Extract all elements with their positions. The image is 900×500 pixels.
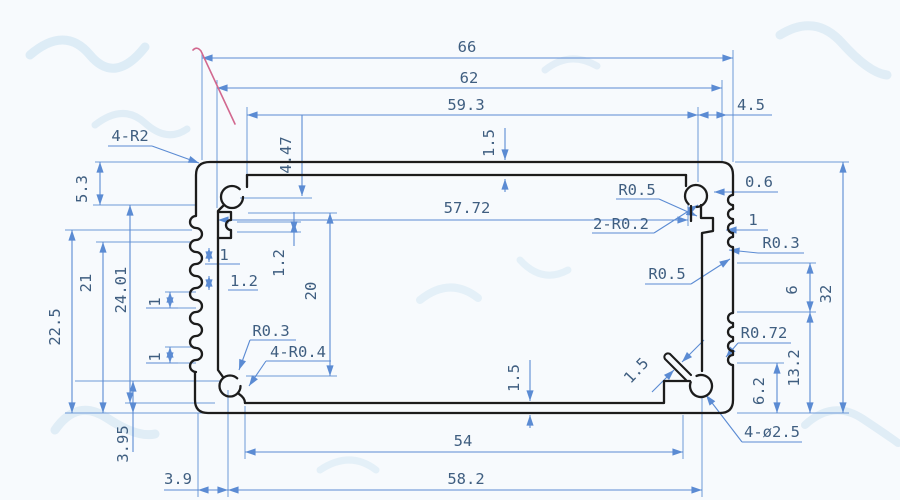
dim-h-5-3: 5.3 bbox=[73, 175, 91, 203]
dim-fin-pitch-1a: 1 bbox=[219, 246, 228, 264]
dim-corner-radius-4-r2: 4-R2 bbox=[111, 127, 148, 145]
profile-left-inner-wall bbox=[218, 205, 224, 377]
dim-offset-4-5: 4.5 bbox=[737, 96, 765, 114]
dimension-labels: 66 62 59.3 4.5 4.47 1.5 4-R2 5.3 22.5 21… bbox=[46, 38, 835, 488]
dim-h-20: 20 bbox=[302, 282, 320, 301]
dim-radius-r0-72: R0.72 bbox=[741, 324, 788, 342]
dim-h-6-2: 6.2 bbox=[750, 377, 768, 405]
dim-fin-pitch-1b: 1 bbox=[146, 297, 164, 306]
dimension-layer: 66 62 59.3 4.5 4.47 1.5 4-R2 5.3 22.5 21… bbox=[46, 38, 849, 497]
profile-bottom-inner-wall bbox=[245, 381, 690, 403]
dim-w-57-72: 57.72 bbox=[444, 199, 491, 217]
dim-radius-r0-3-right: R0.3 bbox=[762, 234, 799, 252]
dim-depth-4-47: 4.47 bbox=[277, 136, 295, 173]
profile-right-inner-wall bbox=[701, 205, 713, 371]
cad-drawing-page: 66 62 59.3 4.5 4.47 1.5 4-R2 5.3 22.5 21… bbox=[0, 0, 900, 500]
stray-pen-mark bbox=[193, 48, 235, 124]
profile-boss-link-bottom-left bbox=[239, 394, 245, 403]
screw-boss-top-left bbox=[221, 186, 243, 208]
dim-h-3-95: 3.95 bbox=[114, 425, 132, 462]
dim-radius-r0-5-mid: R0.5 bbox=[648, 265, 685, 283]
dim-screw-holes-4-d2-5: 4-ø2.5 bbox=[744, 423, 800, 441]
dim-overall-width: 66 bbox=[458, 38, 477, 56]
dim-slot-gap-1-5: 1.5 bbox=[620, 354, 652, 387]
dim-h-22-5: 22.5 bbox=[46, 308, 64, 345]
dim-w-3-9: 3.9 bbox=[164, 470, 192, 488]
dim-h-24-01: 24.01 bbox=[112, 267, 130, 314]
dim-h-6: 6 bbox=[783, 285, 801, 294]
dim-radius-2-r0-2: 2-R0.2 bbox=[593, 215, 649, 233]
dim-fin-width-1-2: 1.2 bbox=[230, 272, 258, 290]
dim-h-32: 32 bbox=[817, 285, 835, 304]
dim-radius-4-r0-4: 4-R0.4 bbox=[270, 343, 326, 361]
screw-boss-bottom-left bbox=[220, 376, 241, 397]
dim-radius-r0-5-top: R0.5 bbox=[618, 181, 655, 199]
dim-w-58-2: 58.2 bbox=[447, 470, 484, 488]
dim-wall-top-1-5: 1.5 bbox=[480, 129, 498, 157]
dim-wall-bottom-1-5: 1.5 bbox=[505, 364, 523, 392]
profile-pcb-rail bbox=[218, 212, 231, 238]
extension-lines bbox=[65, 50, 849, 497]
dim-fin-pitch-1c: 1 bbox=[146, 352, 164, 361]
dim-radius-r0-3-left: R0.3 bbox=[252, 322, 289, 340]
dimension-lines bbox=[72, 58, 843, 490]
dim-h-13-2: 13.2 bbox=[785, 349, 803, 386]
dim-h-21: 21 bbox=[77, 274, 95, 293]
dim-w-54: 54 bbox=[454, 432, 473, 450]
dim-t-0-6: 0.6 bbox=[745, 173, 773, 191]
dim-groove-depth-1: 1 bbox=[748, 211, 757, 229]
dim-slot-width-1-2: 1.2 bbox=[270, 249, 288, 277]
cad-drawing-canvas: 66 62 59.3 4.5 4.47 1.5 4-R2 5.3 22.5 21… bbox=[0, 0, 900, 500]
dim-width-59-3: 59.3 bbox=[447, 96, 484, 114]
dim-width-62: 62 bbox=[460, 69, 479, 87]
